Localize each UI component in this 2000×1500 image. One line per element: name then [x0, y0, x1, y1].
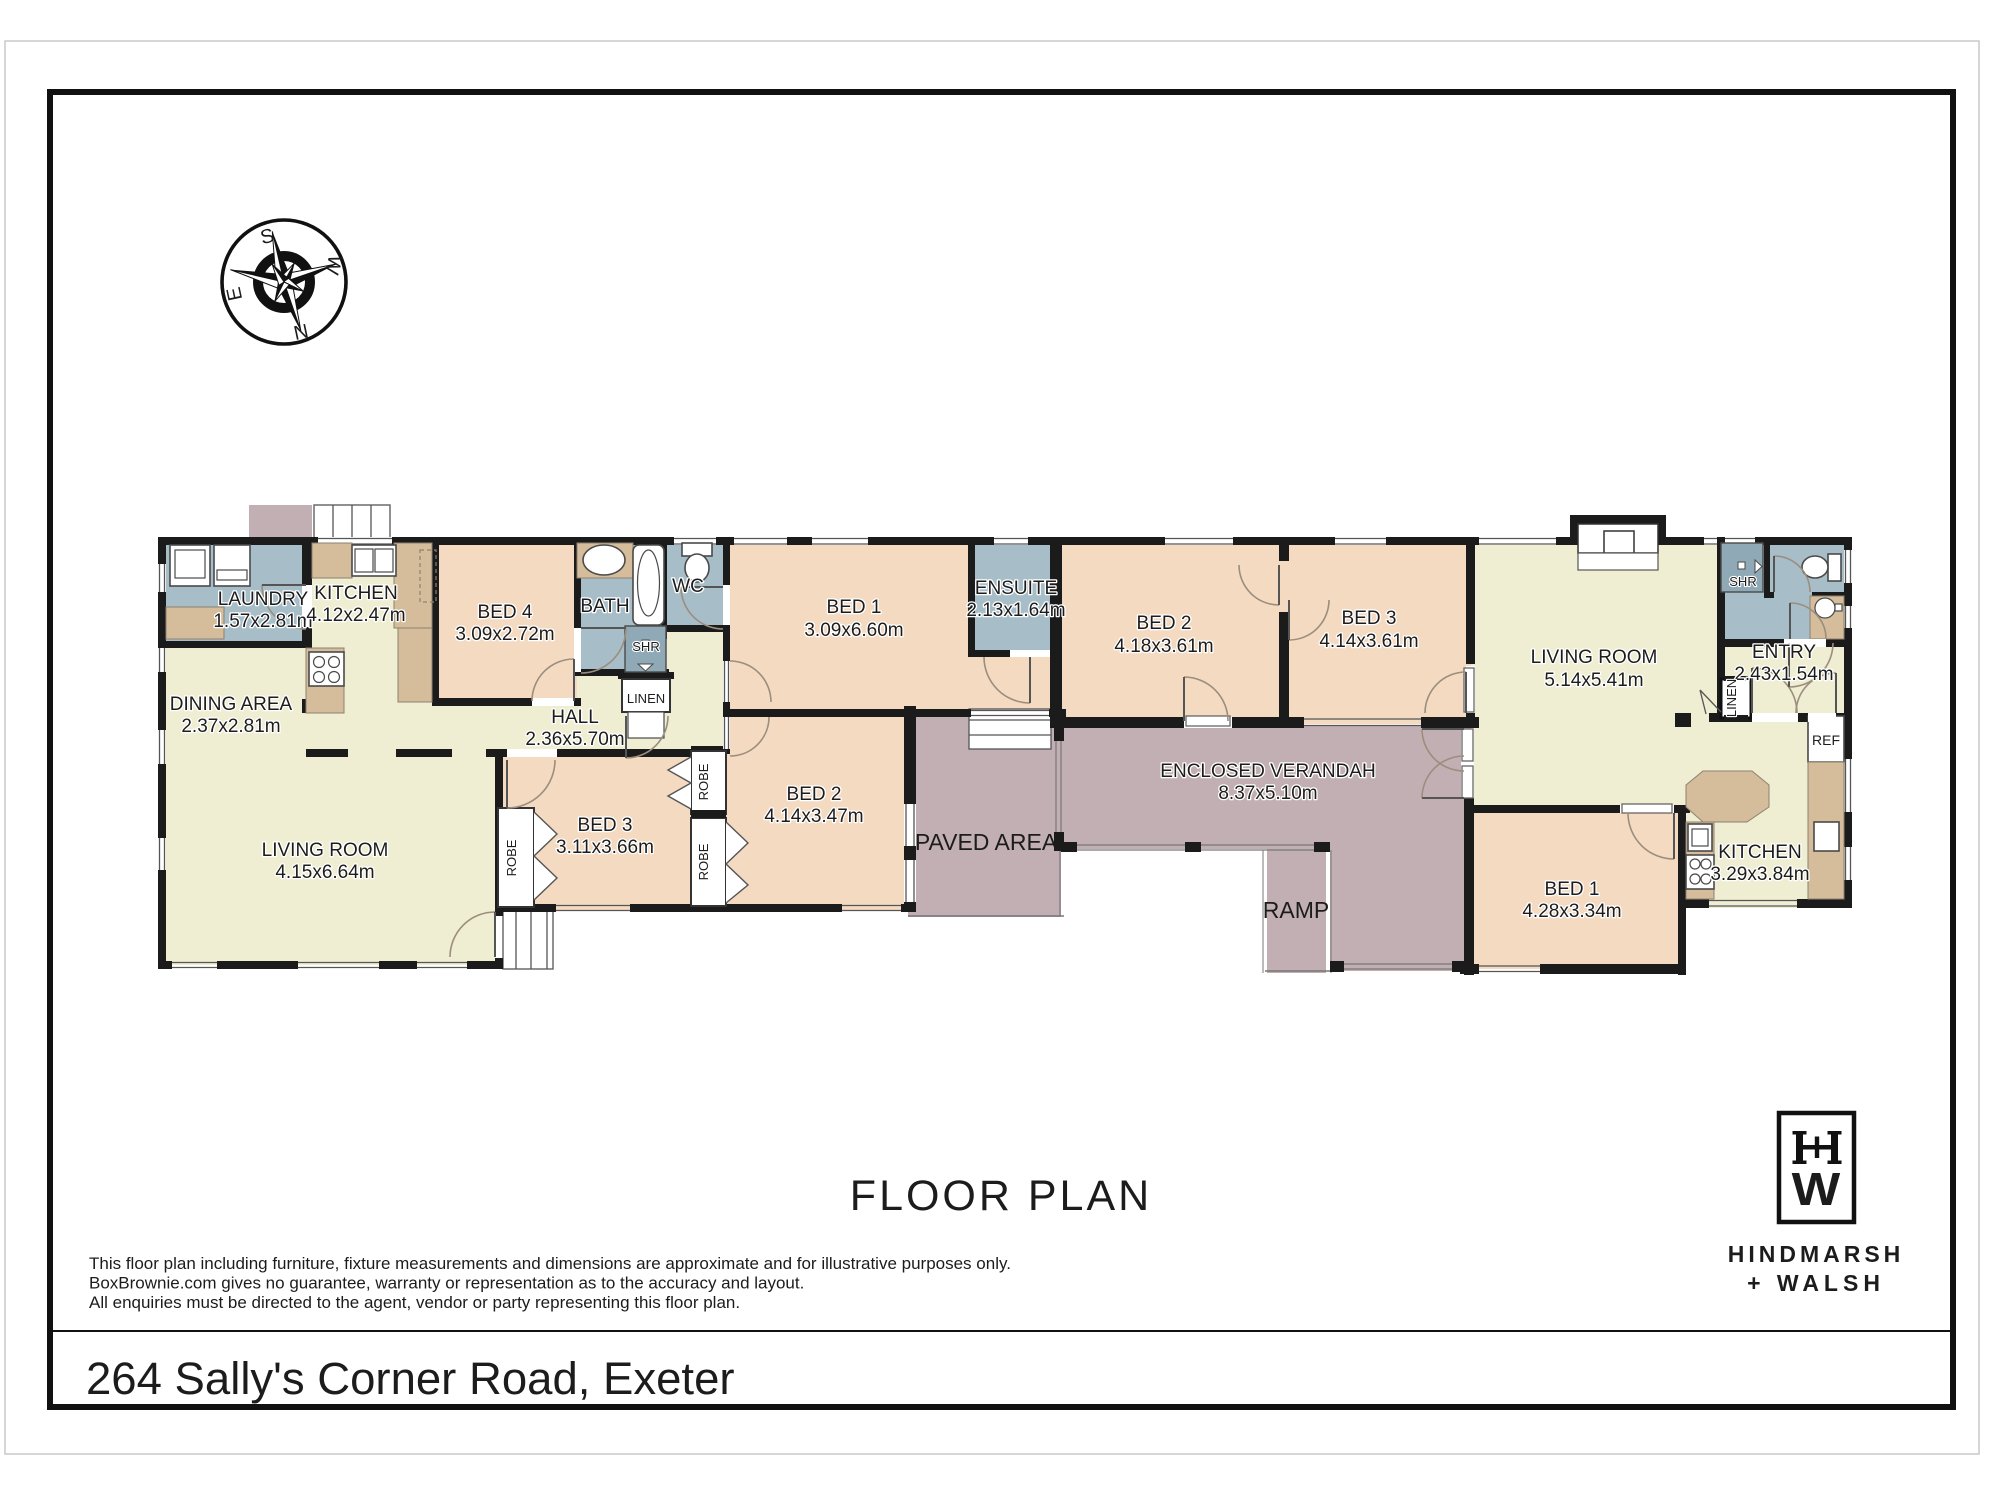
svg-text:PAVED AREA: PAVED AREA	[915, 829, 1058, 855]
svg-text:LIVING ROOM: LIVING ROOM	[262, 840, 389, 861]
svg-text:HALL: HALL	[551, 707, 599, 728]
svg-text:5.14x5.41m: 5.14x5.41m	[1544, 670, 1643, 691]
svg-text:3.09x6.60m: 3.09x6.60m	[804, 620, 903, 641]
svg-text:3.11x3.66m: 3.11x3.66m	[556, 837, 654, 858]
svg-text:+ WALSH: + WALSH	[1747, 1270, 1885, 1296]
svg-text:HINDMARSH: HINDMARSH	[1728, 1241, 1905, 1267]
svg-text:ENTRY: ENTRY	[1752, 642, 1816, 663]
svg-text:4.28x3.34m: 4.28x3.34m	[1522, 901, 1621, 922]
svg-text:2.43x1.54m: 2.43x1.54m	[1734, 664, 1833, 685]
svg-text:BED 3: BED 3	[1342, 608, 1397, 629]
svg-text:ROBE: ROBE	[696, 843, 711, 880]
svg-text:BED 1: BED 1	[1545, 879, 1600, 900]
svg-text:1.57x2.81m: 1.57x2.81m	[213, 611, 312, 632]
svg-text:4.12x2.47m: 4.12x2.47m	[306, 605, 405, 626]
svg-text:BED 2: BED 2	[1137, 613, 1192, 634]
svg-text:KITCHEN: KITCHEN	[314, 583, 397, 604]
svg-text:This floor plan including furn: This floor plan including furniture, fix…	[89, 1254, 1011, 1273]
svg-text:REF: REF	[1812, 732, 1840, 748]
svg-text:BoxBrownie.com gives no guaran: BoxBrownie.com gives no guarantee, warra…	[89, 1274, 804, 1293]
svg-text:LINEN: LINEN	[1724, 679, 1739, 717]
svg-text:LAUNDRY: LAUNDRY	[218, 589, 309, 610]
svg-text:3.29x3.84m: 3.29x3.84m	[1710, 864, 1809, 885]
svg-text:4.14x3.47m: 4.14x3.47m	[764, 806, 863, 827]
svg-text:All enquiries must be directed: All enquiries must be directed to the ag…	[89, 1293, 740, 1312]
svg-text:BED 1: BED 1	[827, 597, 882, 618]
svg-text:ENCLOSED VERANDAH: ENCLOSED VERANDAH	[1160, 761, 1375, 782]
svg-text:4.14x3.61m: 4.14x3.61m	[1319, 631, 1418, 652]
svg-text:BATH: BATH	[580, 596, 629, 617]
svg-text:ENSUITE: ENSUITE	[975, 578, 1057, 599]
svg-text:2.37x2.81m: 2.37x2.81m	[181, 716, 280, 737]
svg-text:FLOOR PLAN: FLOOR PLAN	[850, 1172, 1152, 1220]
svg-text:W: W	[1792, 1164, 1842, 1215]
svg-text:LINEN: LINEN	[627, 691, 665, 706]
svg-text:2.36x5.70m: 2.36x5.70m	[525, 729, 624, 750]
svg-text:KITCHEN: KITCHEN	[1718, 842, 1801, 863]
svg-text:WC: WC	[672, 576, 704, 597]
svg-text:SHR: SHR	[1729, 574, 1756, 589]
svg-text:264 Sally's Corner Road, Exete: 264 Sally's Corner Road, Exeter	[86, 1353, 735, 1404]
svg-text:4.18x3.61m: 4.18x3.61m	[1114, 636, 1213, 657]
svg-text:BED 4: BED 4	[478, 602, 533, 623]
svg-text:8.37x5.10m: 8.37x5.10m	[1218, 783, 1317, 804]
svg-text:ROBE: ROBE	[696, 763, 711, 800]
svg-text:SHR: SHR	[632, 639, 659, 654]
svg-text:BED 2: BED 2	[787, 784, 842, 805]
svg-text:3.09x2.72m: 3.09x2.72m	[455, 624, 554, 645]
svg-text:ROBE: ROBE	[504, 839, 519, 876]
svg-text:RAMP: RAMP	[1263, 897, 1329, 923]
svg-text:4.15x6.64m: 4.15x6.64m	[275, 862, 374, 883]
svg-text:2.13x1.64m: 2.13x1.64m	[966, 600, 1065, 621]
svg-text:DINING AREA: DINING AREA	[170, 694, 293, 715]
svg-text:BED 3: BED 3	[578, 815, 633, 836]
svg-text:LIVING ROOM: LIVING ROOM	[1531, 647, 1658, 668]
